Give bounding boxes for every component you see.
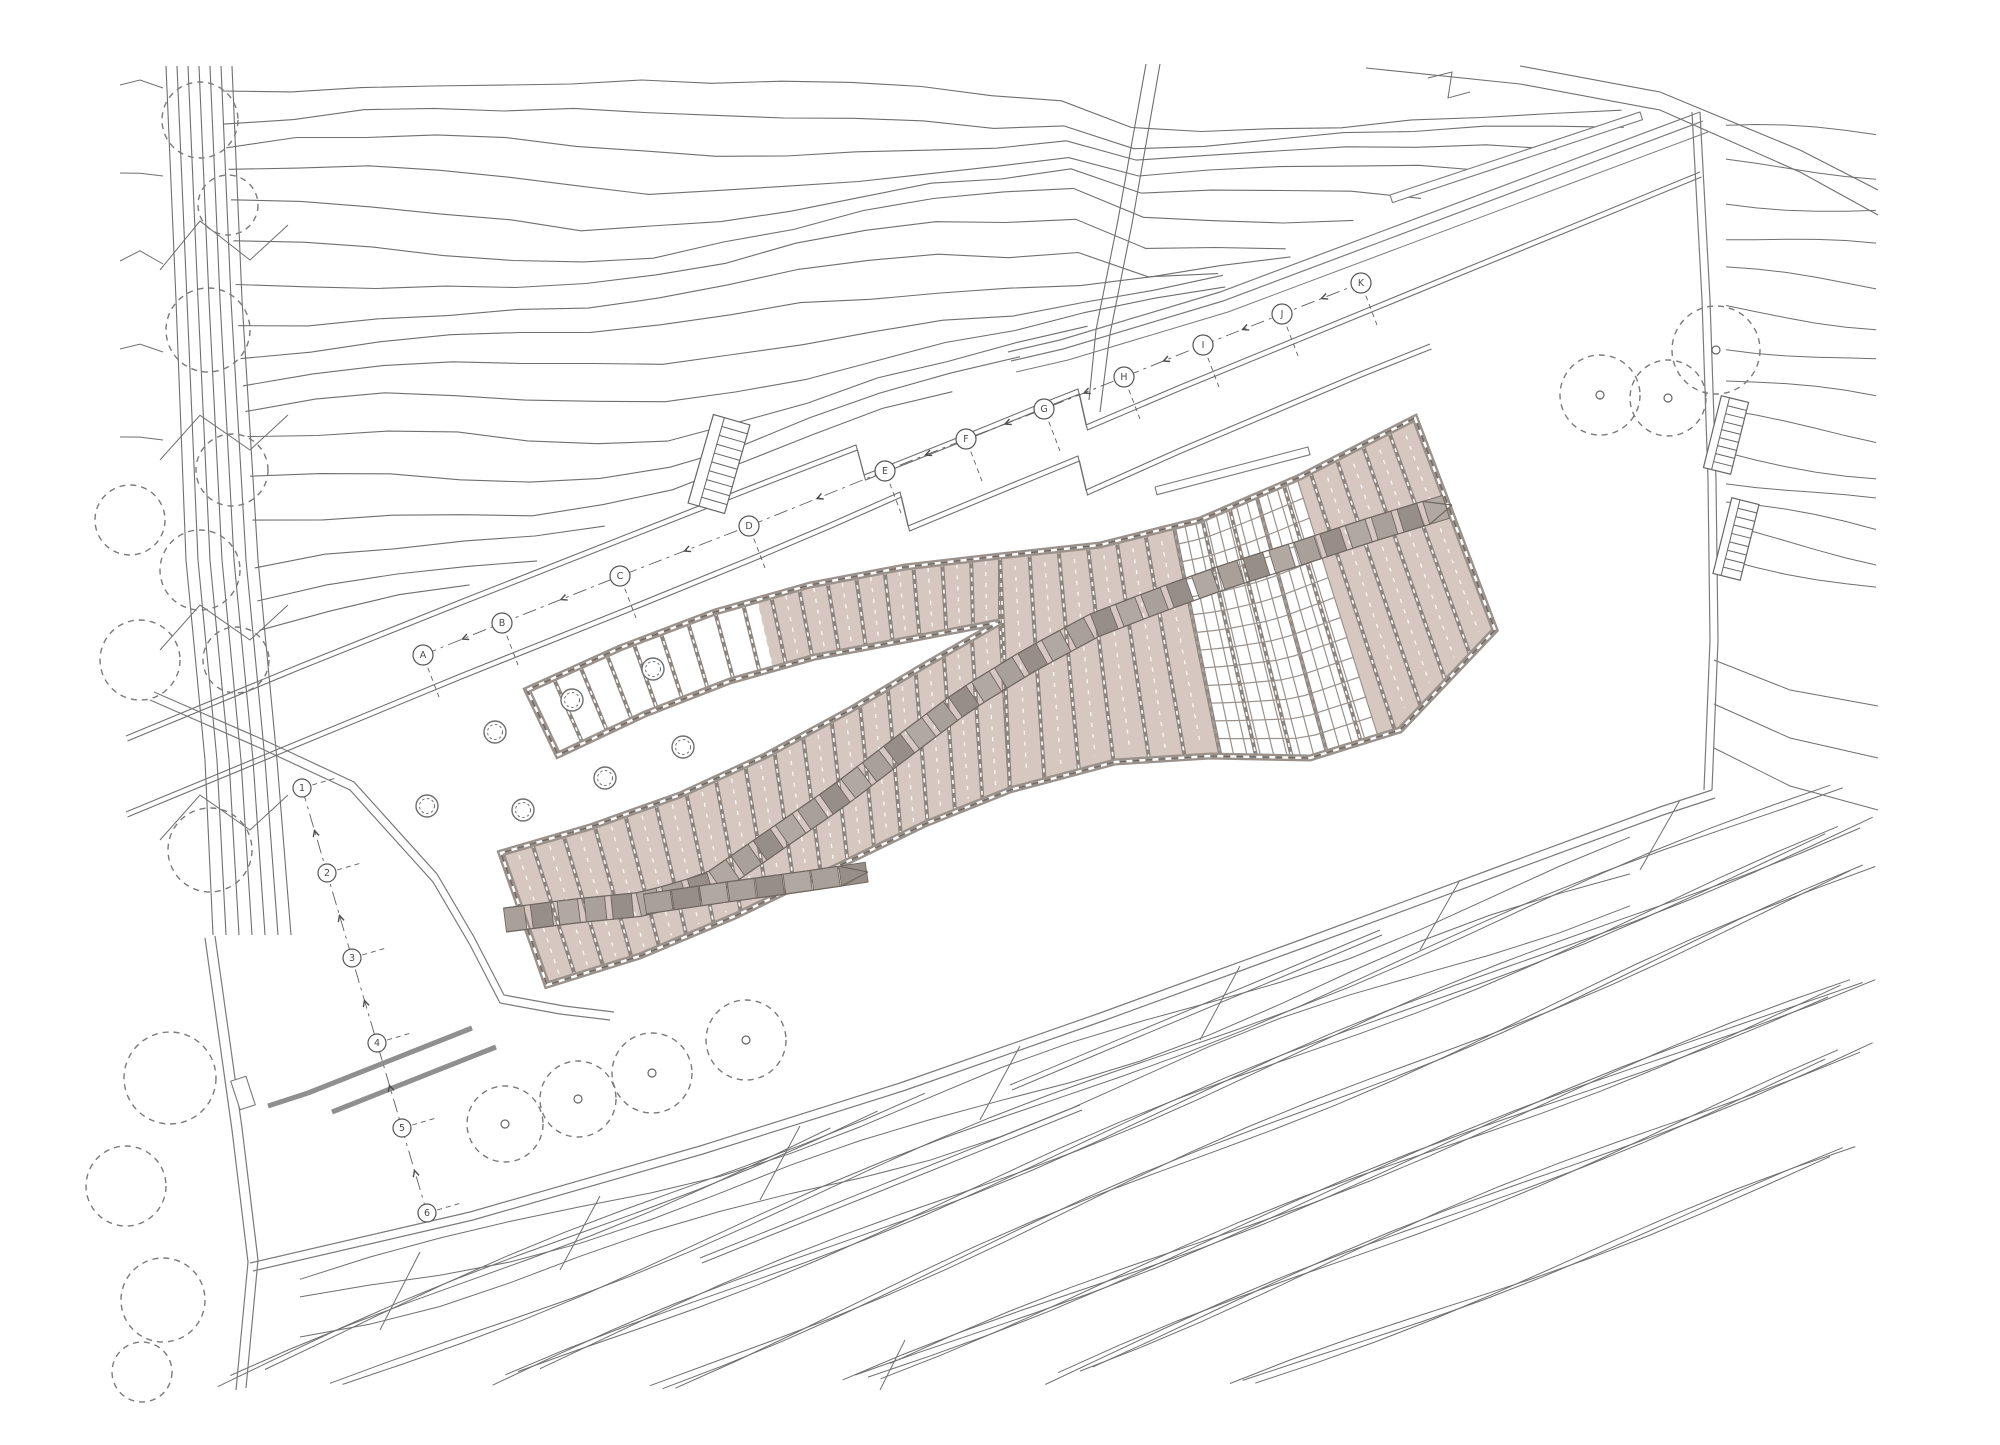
svg-text:2: 2 <box>324 868 330 879</box>
svg-text:5: 5 <box>399 1123 405 1134</box>
svg-text:J: J <box>1280 309 1284 320</box>
site-plan-page: ABCDEFGHIJK123456 <box>0 0 2000 1445</box>
svg-text:B: B <box>499 618 506 629</box>
contours-bottomright-terraces <box>218 785 1876 1390</box>
svg-text:C: C <box>617 571 624 582</box>
svg-text:4: 4 <box>374 1038 380 1049</box>
survey-line-numbers: 123456 <box>293 778 461 1222</box>
svg-text:H: H <box>1120 372 1127 383</box>
svg-text:D: D <box>745 521 752 532</box>
svg-text:A: A <box>420 650 427 661</box>
left-slope-band <box>160 66 291 935</box>
contours-right-slope <box>1714 125 1878 811</box>
svg-text:G: G <box>1040 404 1047 415</box>
svg-text:K: K <box>1358 278 1365 289</box>
svg-text:1: 1 <box>299 783 305 794</box>
svg-text:3: 3 <box>349 953 355 964</box>
svg-text:I: I <box>1202 340 1205 351</box>
svg-text:F: F <box>963 434 968 445</box>
contours-topleft-slope <box>120 64 1878 630</box>
svg-text:6: 6 <box>424 1208 430 1219</box>
architectural-site-plan: ABCDEFGHIJK123456 <box>0 0 2000 1445</box>
svg-text:E: E <box>882 466 888 477</box>
